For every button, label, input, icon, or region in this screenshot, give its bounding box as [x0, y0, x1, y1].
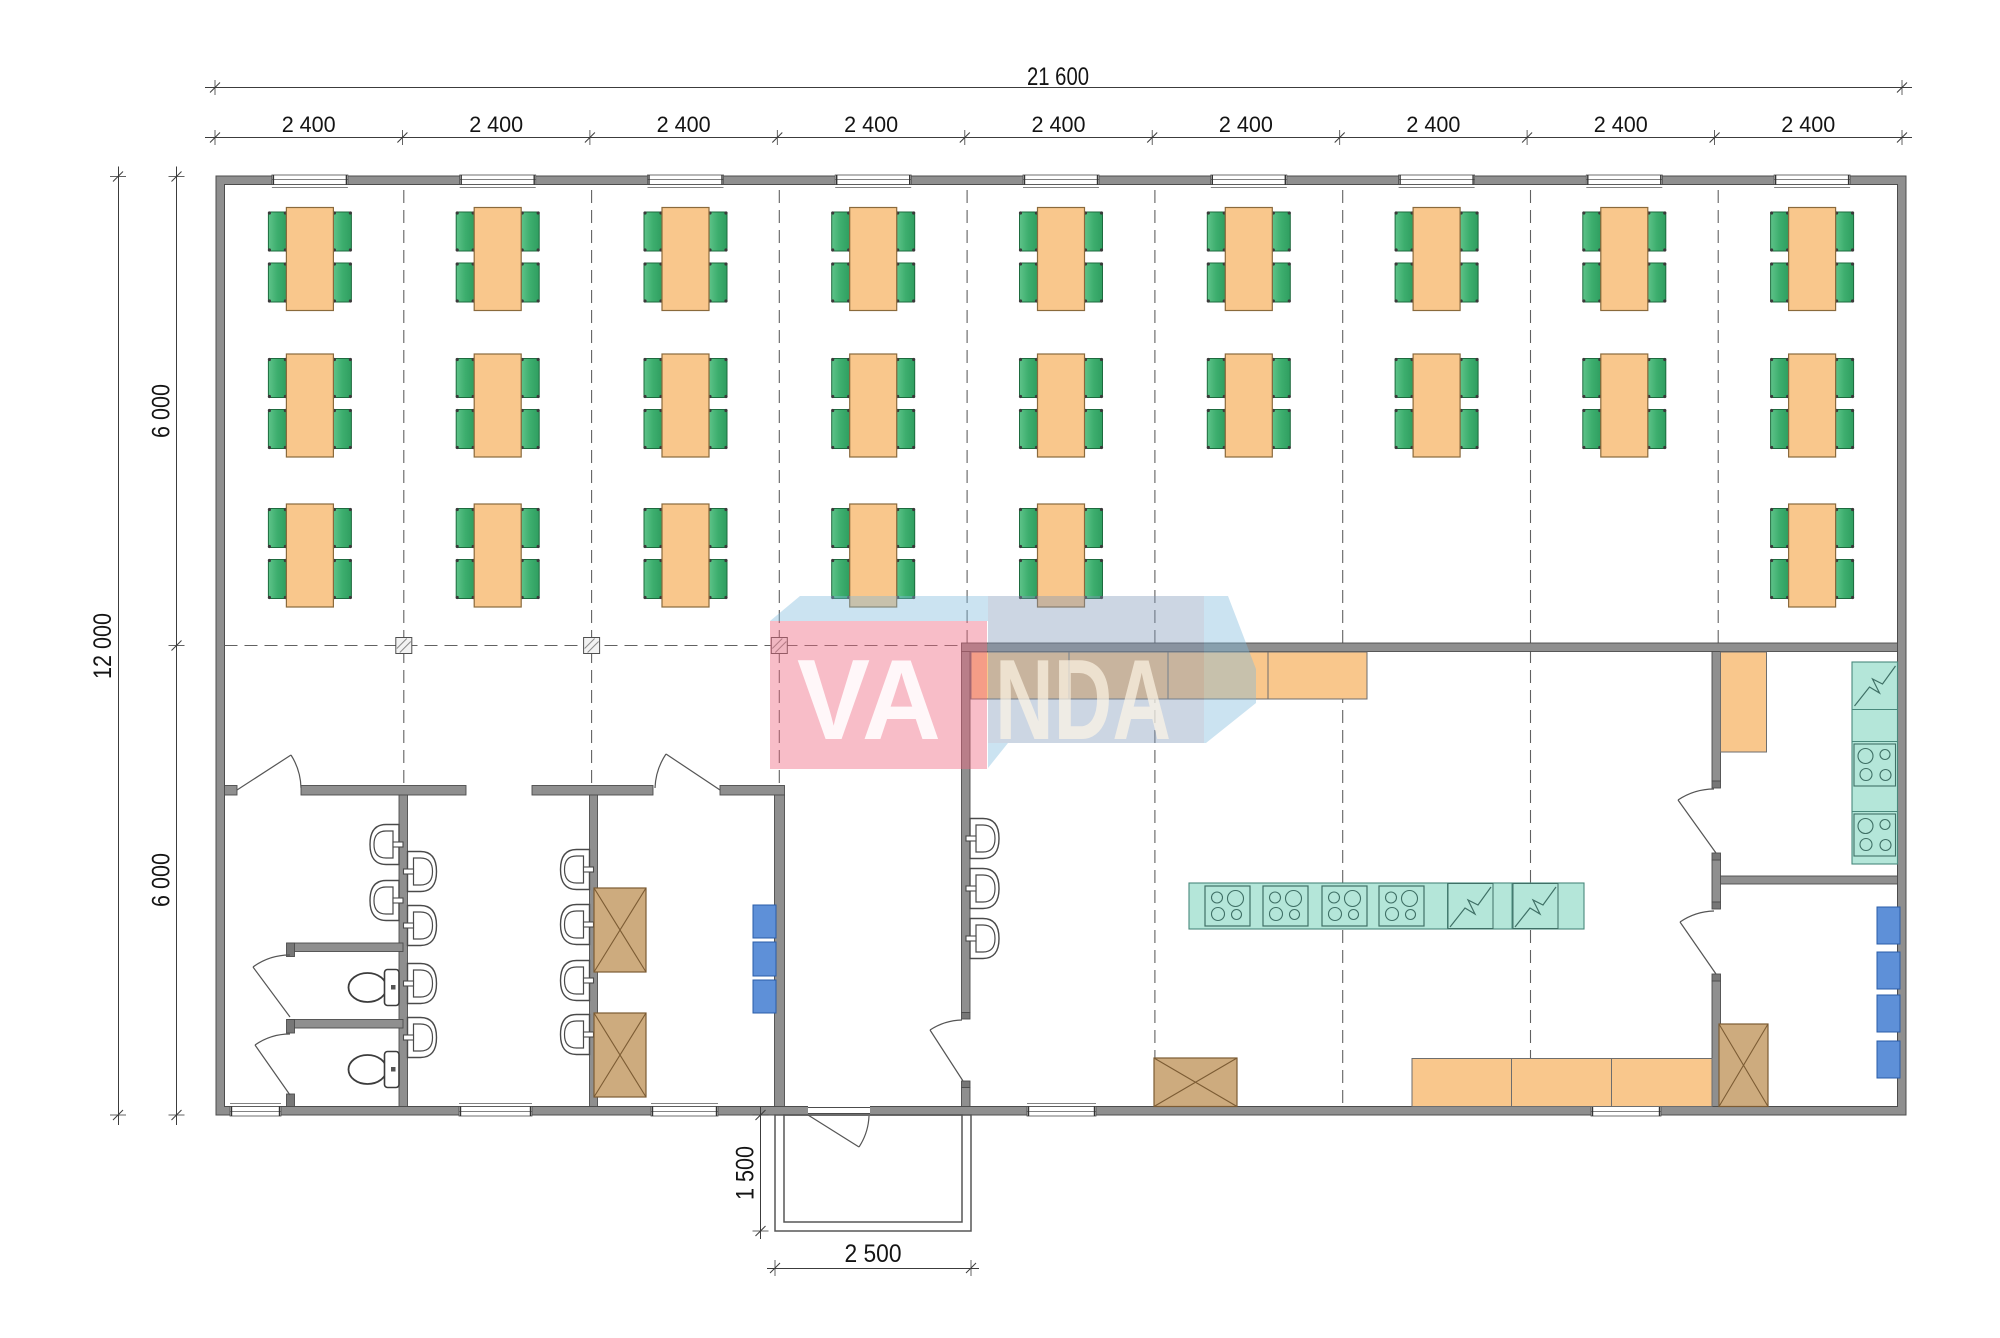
svg-text:1 500: 1 500 [732, 1146, 760, 1200]
svg-text:2 400: 2 400 [282, 112, 336, 137]
svg-text:2 400: 2 400 [1406, 112, 1460, 137]
svg-text:12 000: 12 000 [89, 613, 117, 679]
svg-text:21 600: 21 600 [1027, 63, 1089, 91]
svg-text:2 400: 2 400 [469, 112, 523, 137]
svg-text:2 400: 2 400 [1032, 112, 1086, 137]
svg-text:2 400: 2 400 [844, 112, 898, 137]
svg-text:2 400: 2 400 [1219, 112, 1273, 137]
svg-text:2 400: 2 400 [1594, 112, 1648, 137]
svg-text:2 400: 2 400 [1781, 112, 1835, 137]
svg-text:2 400: 2 400 [657, 112, 711, 137]
svg-text:VA: VA [797, 637, 941, 764]
svg-text:NDA: NDA [995, 637, 1171, 764]
svg-text:6 000: 6 000 [148, 853, 176, 907]
svg-text:6 000: 6 000 [148, 384, 176, 438]
svg-text:2 500: 2 500 [845, 1240, 902, 1268]
